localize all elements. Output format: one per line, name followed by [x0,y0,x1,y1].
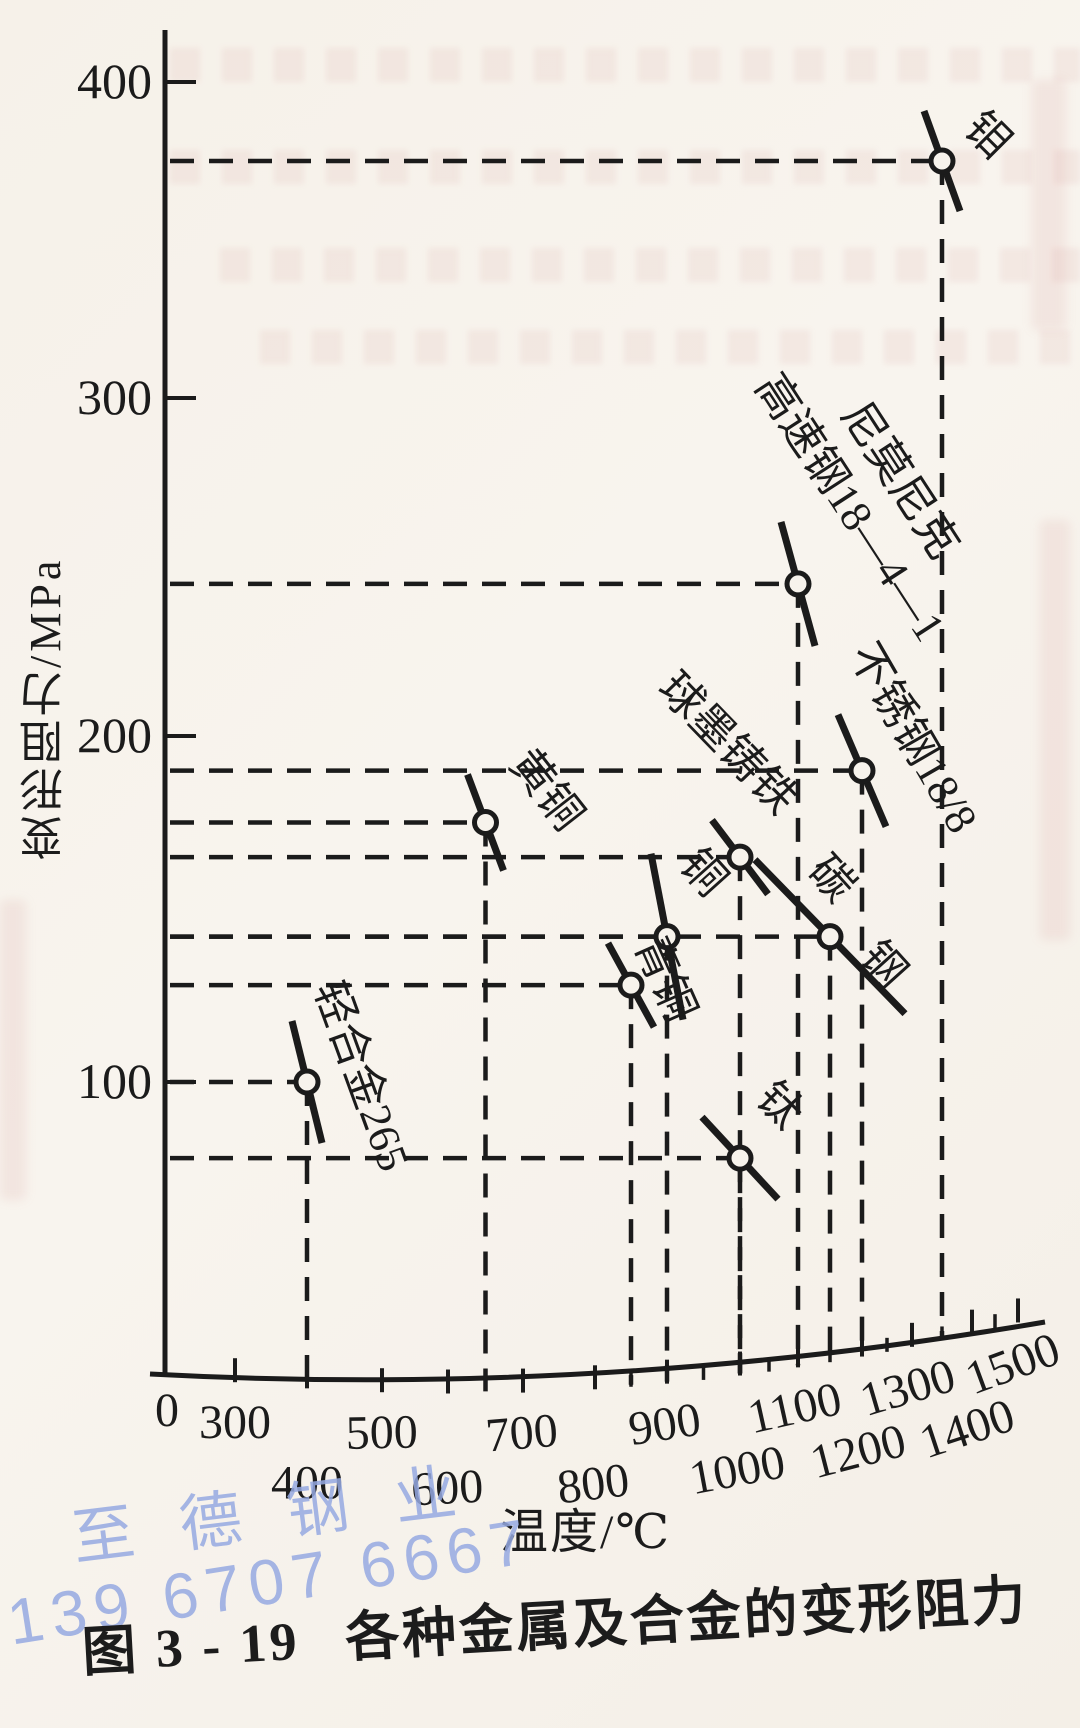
data-point [729,846,751,868]
x-tick-label: 600 [410,1460,485,1517]
x-tick-label: 700 [484,1404,560,1463]
point-label: 黄铜 [500,740,593,840]
scanned-textbook-page: 1002003004000300500700900110013001500400… [0,0,1080,1728]
data-point [819,926,841,948]
y-tick-label: 100 [77,1053,152,1109]
data-point [787,573,809,595]
point-label: 碳 [799,846,865,911]
y-axis-title: 变形阻力/MPa [14,560,70,860]
data-point [851,760,873,782]
x-tick-label: 300 [199,1396,271,1449]
x-tick-label: 900 [625,1393,704,1456]
x-tick-label: 1000 [685,1435,789,1505]
data-point [729,1147,751,1169]
data-point [475,812,497,834]
data-point [296,1071,318,1093]
x-axis-title: 温度/℃ [500,1492,671,1562]
x-tick-label: 500 [345,1406,418,1460]
point-label: 轻合金265 [305,975,419,1178]
figure-number: 图 3 - 19 [81,1611,301,1683]
y-tick-label: 400 [77,53,152,109]
point-label: 钼 [955,102,1021,168]
y-tick-label: 300 [77,369,152,425]
x-tick-label: 0 [155,1384,179,1437]
y-tick-label: 200 [77,707,152,763]
point-label: 铜 [671,840,737,905]
deformation-resistance-chart: 1002003004000300500700900110013001500400… [0,0,1080,1728]
point-label: 球墨铸铁 [649,663,807,824]
data-point [931,150,953,172]
point-label: 钛 [747,1072,813,1138]
x-tick-label: 400 [271,1456,343,1509]
